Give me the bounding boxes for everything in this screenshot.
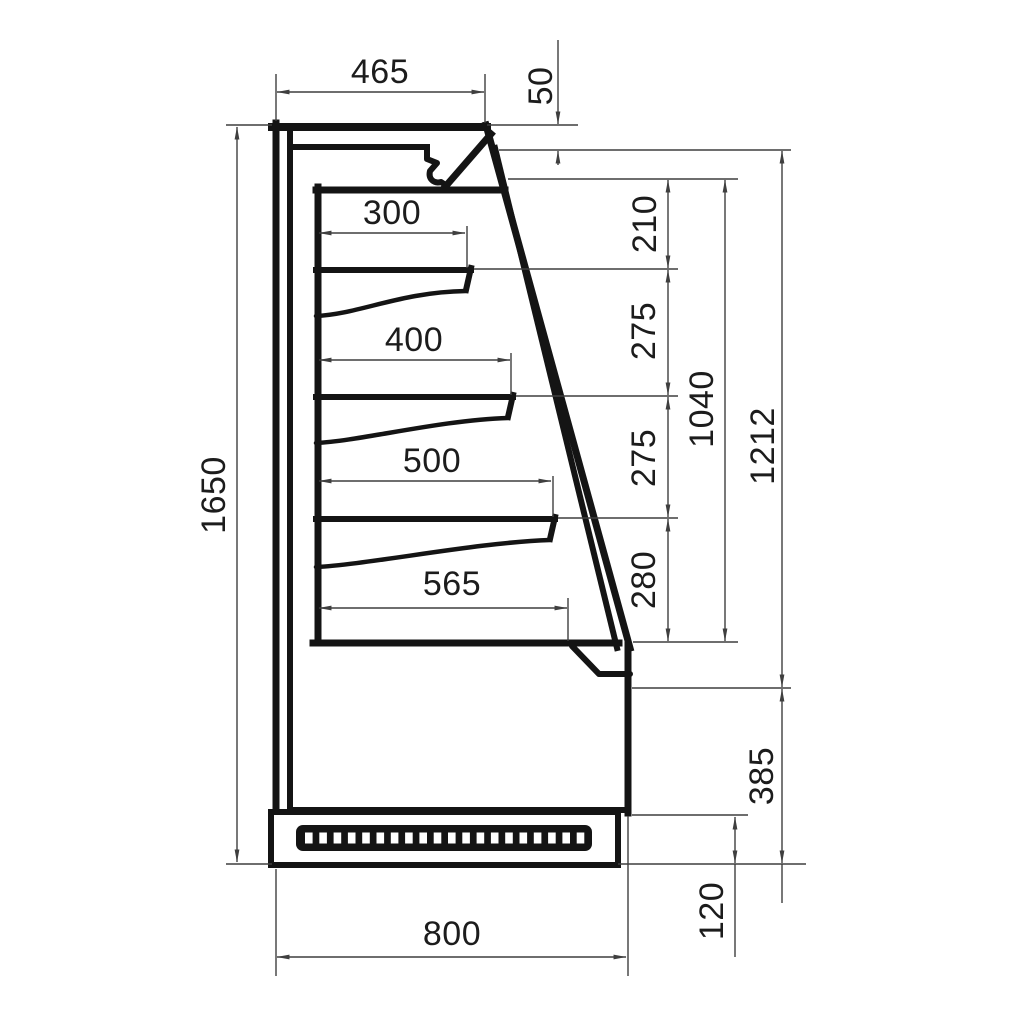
- grille-slot: [347, 832, 356, 844]
- grille-slot: [476, 832, 485, 844]
- grille-slot: [576, 832, 585, 844]
- label-plinth-height: 120: [693, 882, 731, 940]
- shelf-2-bracket: [316, 418, 508, 443]
- grille-slot: [390, 832, 399, 844]
- grille-slot: [319, 832, 328, 844]
- air-discharge-lip: [445, 134, 491, 187]
- label-shelf-1-depth: 300: [363, 194, 421, 232]
- grille-slot: [519, 832, 528, 844]
- grille-slot: [433, 832, 442, 844]
- shelf-3-bracket: [316, 540, 550, 567]
- label-spacing-shelf1-shelf2: 275: [625, 302, 663, 360]
- grille-slot: [533, 832, 542, 844]
- label-canopy-front-height: 50: [522, 67, 560, 106]
- shelf-1: [316, 268, 471, 290]
- label-overall-height: 1650: [195, 456, 233, 534]
- deck-front-step: [572, 646, 630, 674]
- grille-slot: [490, 832, 499, 844]
- label-upper-front-height: 1212: [744, 407, 782, 485]
- grille-slot: [562, 832, 571, 844]
- grille-slot: [448, 832, 457, 844]
- technical-drawing-page: 465 50 300 400 500 565 1650 800 210 275 …: [0, 0, 1024, 1024]
- label-top-depth: 465: [351, 53, 409, 91]
- grille-slot: [305, 832, 314, 844]
- canopy-light-detail: [427, 147, 447, 186]
- shelf-1-bracket: [316, 291, 466, 316]
- grille-slot: [505, 832, 514, 844]
- label-lower-front-height: 385: [743, 747, 781, 805]
- label-spacing-shelf3-deck: 280: [625, 551, 663, 609]
- grille-slot: [419, 832, 428, 844]
- label-deck-depth: 565: [423, 565, 481, 603]
- grille-slot: [548, 832, 557, 844]
- label-overall-depth: 800: [423, 915, 481, 953]
- label-spacing-top-shelf1: 210: [626, 195, 664, 253]
- cabinet-structure: [271, 123, 630, 865]
- label-opening-height: 1040: [683, 370, 721, 448]
- grille-slot: [376, 832, 385, 844]
- label-shelf-3-depth: 500: [403, 442, 461, 480]
- shelf-2: [316, 395, 513, 417]
- cabinet-cross-section-drawing: 465 50 300 400 500 565 1650 800 210 275 …: [0, 0, 1024, 1024]
- label-spacing-shelf2-shelf3: 275: [625, 429, 663, 487]
- grille-slot: [462, 832, 471, 844]
- label-shelf-2-depth: 400: [385, 321, 443, 359]
- grille-slot: [333, 832, 342, 844]
- grille-slot: [405, 832, 414, 844]
- shelf-3: [316, 517, 555, 539]
- grille-slot: [362, 832, 371, 844]
